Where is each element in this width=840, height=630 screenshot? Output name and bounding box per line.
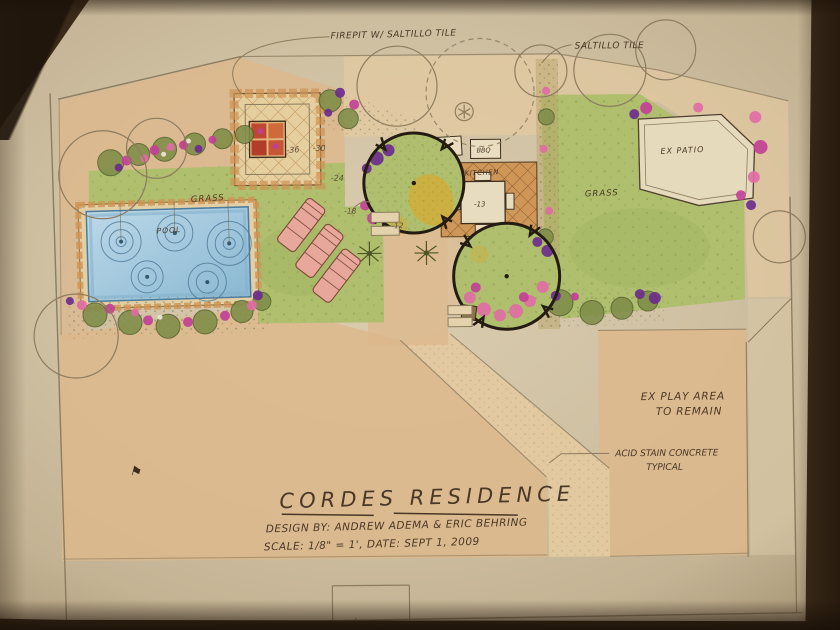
pool-label: POOL <box>156 225 181 236</box>
kitchen-label: KITCHEN <box>465 168 500 177</box>
planting-bed-right-grass <box>547 288 668 327</box>
firepit <box>249 121 285 157</box>
paper-sheet: POOL <box>0 0 840 630</box>
title-stamp-box <box>332 585 409 630</box>
acid-stain-line2: TYPICAL <box>646 463 683 473</box>
grass-left-label: GRASS <box>191 193 225 205</box>
saltillo-callout: SALTILLO TILE <box>575 41 645 52</box>
ex-play-line2: TO REMAIN <box>656 405 722 418</box>
grass-right-label: GRASS <box>585 188 619 199</box>
ex-play-line1: EX PLAY AREA <box>641 390 725 403</box>
dim-24: -24 <box>331 174 344 183</box>
photo-of-landscape-plan: POOL <box>0 0 840 630</box>
pool-water <box>86 207 251 302</box>
pool-group: POOL <box>78 200 259 309</box>
site-plan-drawing: POOL <box>0 0 840 630</box>
dim-30: -30 <box>313 144 326 153</box>
acid-stain-line1: ACID STAIN CONCRETE <box>614 448 719 459</box>
bbq-label: BBQ <box>477 146 491 154</box>
ex-patio-label: EX PATIO <box>660 145 704 156</box>
dim-18: -18 <box>344 207 357 216</box>
firepit-callout: FIREPIT W/ SALTILLO TILE <box>330 28 456 41</box>
table-dimension: -13 <box>474 200 486 208</box>
dim-36: -36 <box>286 145 300 155</box>
dim-12: -12 <box>391 221 404 230</box>
